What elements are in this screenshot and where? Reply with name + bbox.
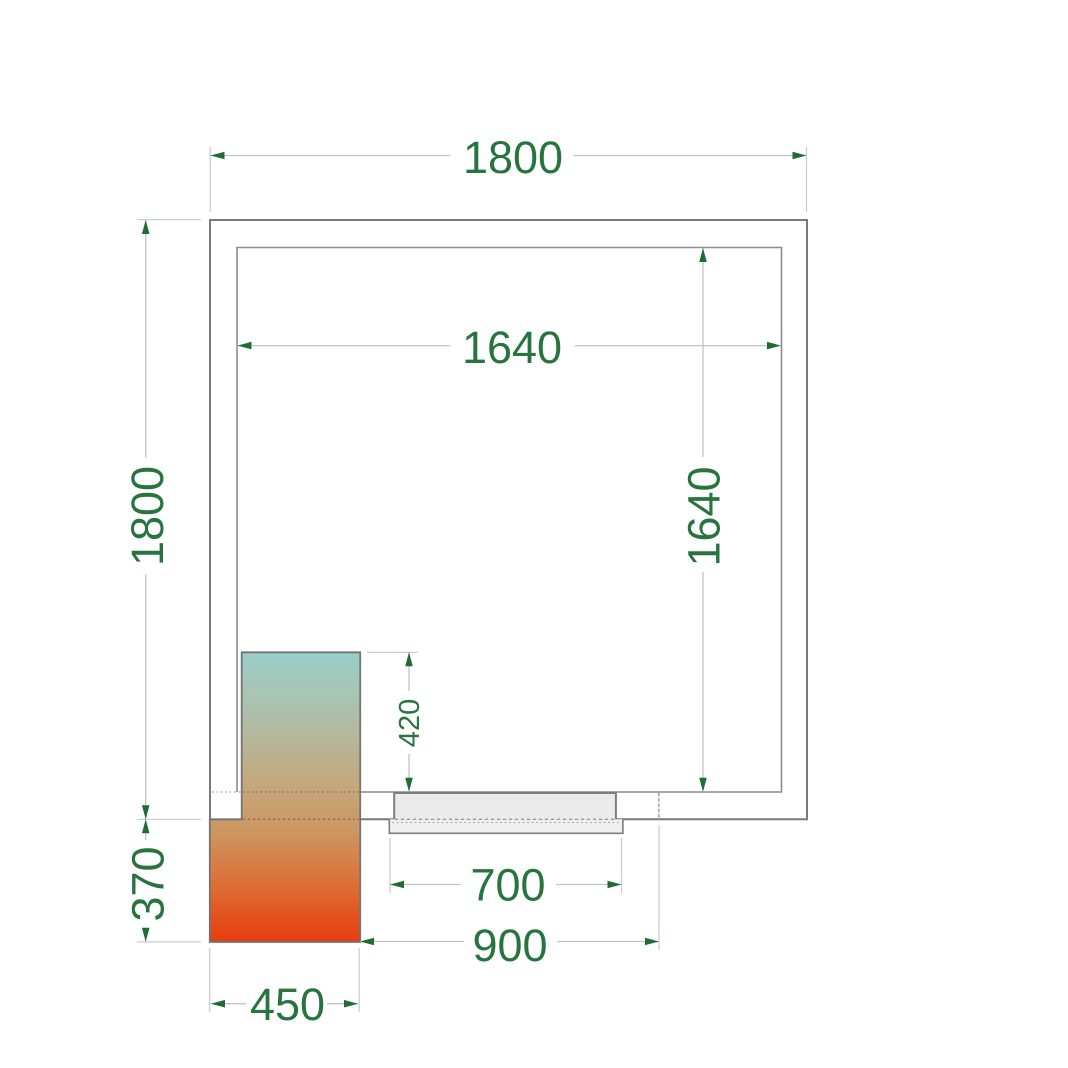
svg-text:700: 700 <box>470 859 545 910</box>
svg-text:370: 370 <box>122 846 173 921</box>
svg-text:1800: 1800 <box>122 466 173 566</box>
svg-text:1800: 1800 <box>463 132 563 183</box>
svg-text:1640: 1640 <box>678 466 729 566</box>
svg-text:450: 450 <box>250 979 325 1030</box>
svg-text:420: 420 <box>394 699 426 747</box>
svg-text:900: 900 <box>472 920 547 971</box>
svg-text:1640: 1640 <box>462 322 562 373</box>
